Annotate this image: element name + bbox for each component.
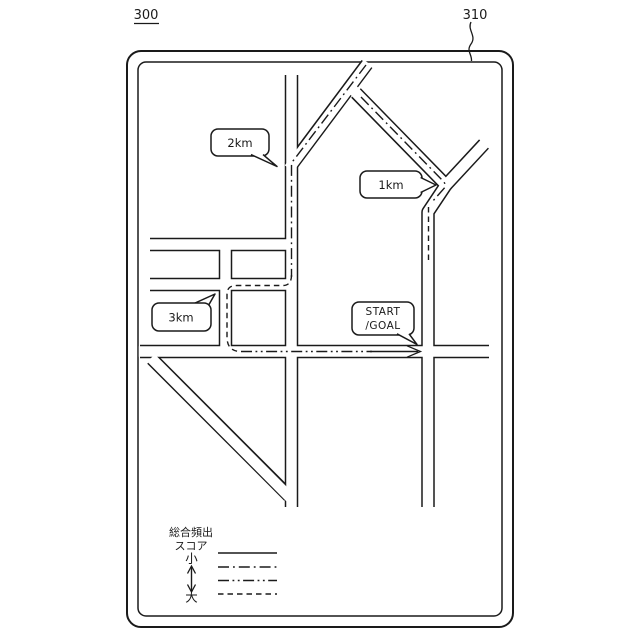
- callout-start-text: START: [366, 306, 401, 318]
- callout-1km-text: 1km: [378, 178, 403, 192]
- figure-ref-label: 300: [134, 8, 159, 23]
- legend-scale-small: 小: [185, 551, 198, 566]
- legend-title-line1: 総合頻出: [169, 525, 213, 539]
- figure-canvas: 300 310: [0, 0, 640, 640]
- screen-ref-label: 310: [463, 8, 488, 23]
- callout-goal-text: /GOAL: [365, 320, 400, 332]
- legend-scale-large: 大: [185, 590, 198, 605]
- callout-3km-text: 3km: [168, 311, 193, 325]
- callout-2km-text: 2km: [227, 136, 252, 150]
- patent-figure: 300 310: [0, 0, 640, 640]
